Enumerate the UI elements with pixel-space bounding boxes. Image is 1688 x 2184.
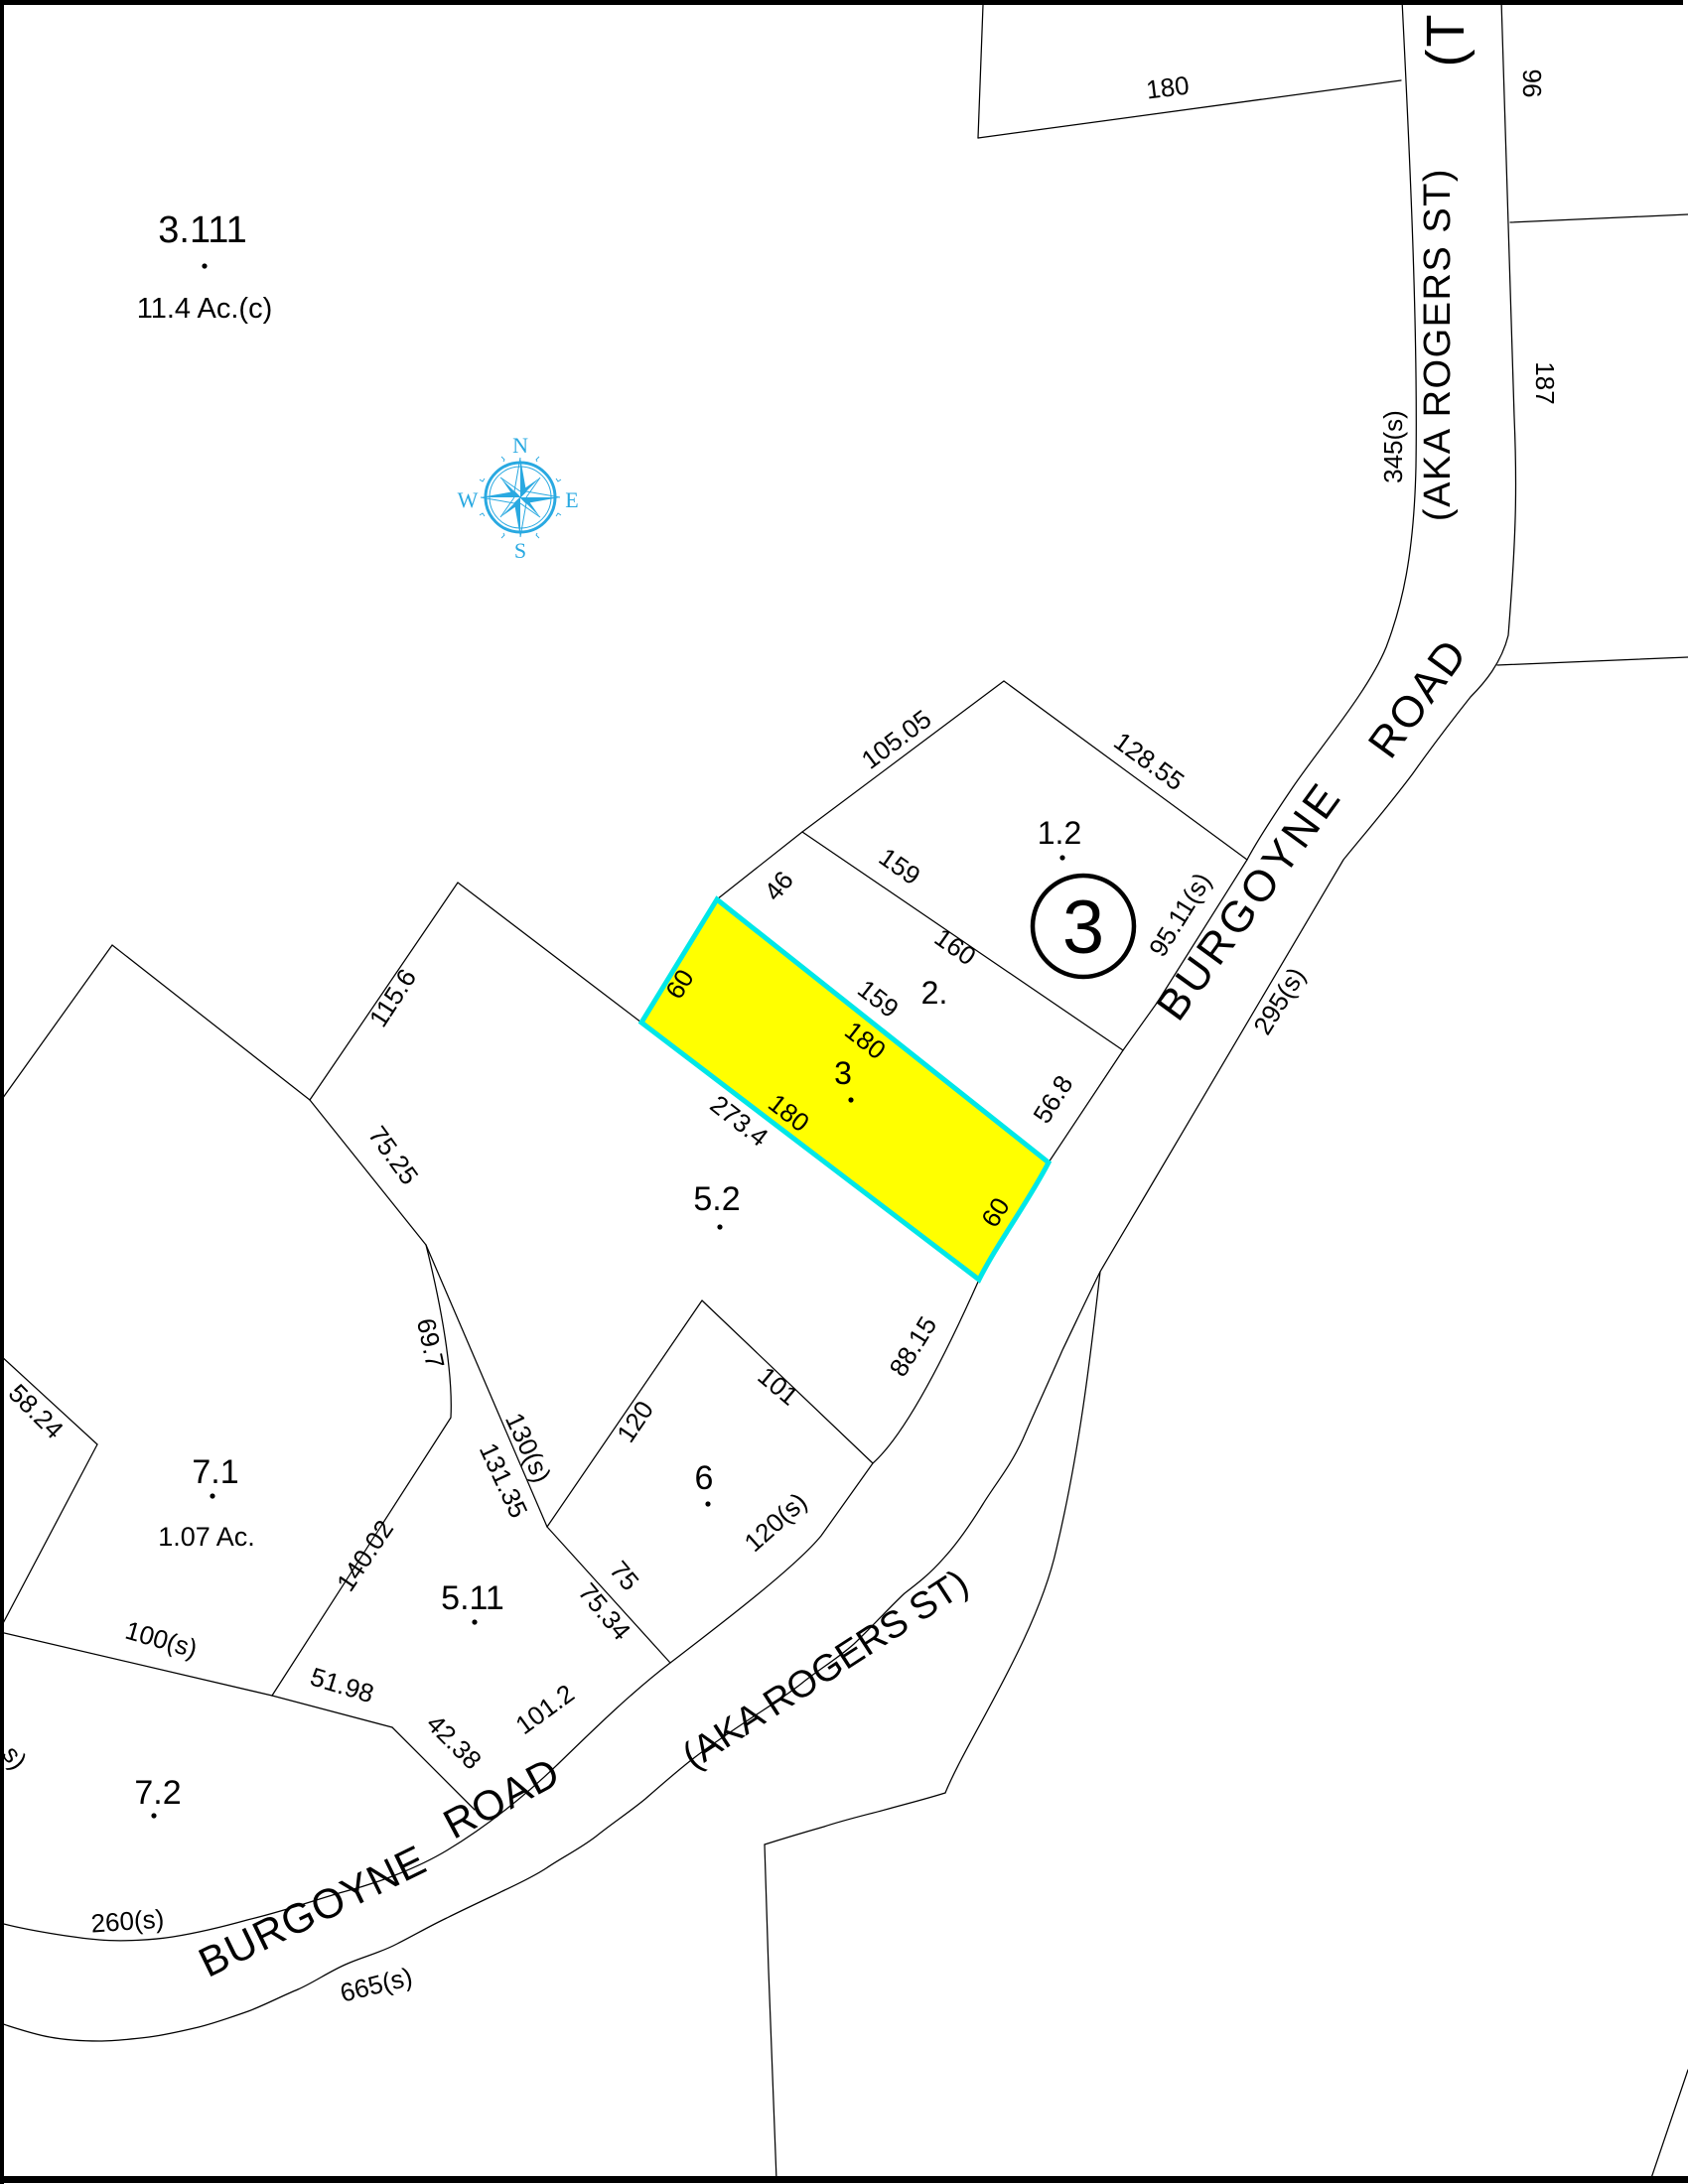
svg-text:W: W	[458, 487, 479, 512]
svg-text:7.2: 7.2	[134, 1774, 181, 1812]
svg-text:7.1: 7.1	[192, 1453, 238, 1491]
svg-text:E: E	[565, 487, 578, 512]
svg-text:3: 3	[834, 1055, 852, 1091]
svg-text:N: N	[512, 433, 528, 458]
svg-text:11.4 Ac.(c): 11.4 Ac.(c)	[137, 293, 272, 325]
svg-text:(T: (T	[1416, 13, 1476, 68]
svg-text:260(s): 260(s)	[90, 1903, 166, 1938]
svg-text:2.: 2.	[921, 975, 948, 1011]
svg-text:6: 6	[695, 1459, 714, 1497]
svg-text:5.2: 5.2	[693, 1180, 740, 1218]
svg-text:1.2: 1.2	[1038, 815, 1081, 851]
svg-text:96: 96	[1517, 69, 1547, 98]
svg-text:5.11: 5.11	[441, 1579, 504, 1617]
svg-text:3: 3	[1062, 886, 1104, 970]
svg-text:1.07 Ac.: 1.07 Ac.	[158, 1522, 255, 1552]
svg-text:(AKA ROGERS ST): (AKA ROGERS ST)	[1417, 168, 1459, 521]
svg-text:187: 187	[1530, 361, 1560, 404]
svg-text:345(s): 345(s)	[1378, 410, 1408, 483]
svg-text:180: 180	[1145, 70, 1192, 105]
svg-text:S: S	[514, 538, 526, 563]
svg-text:3.111: 3.111	[158, 209, 246, 251]
